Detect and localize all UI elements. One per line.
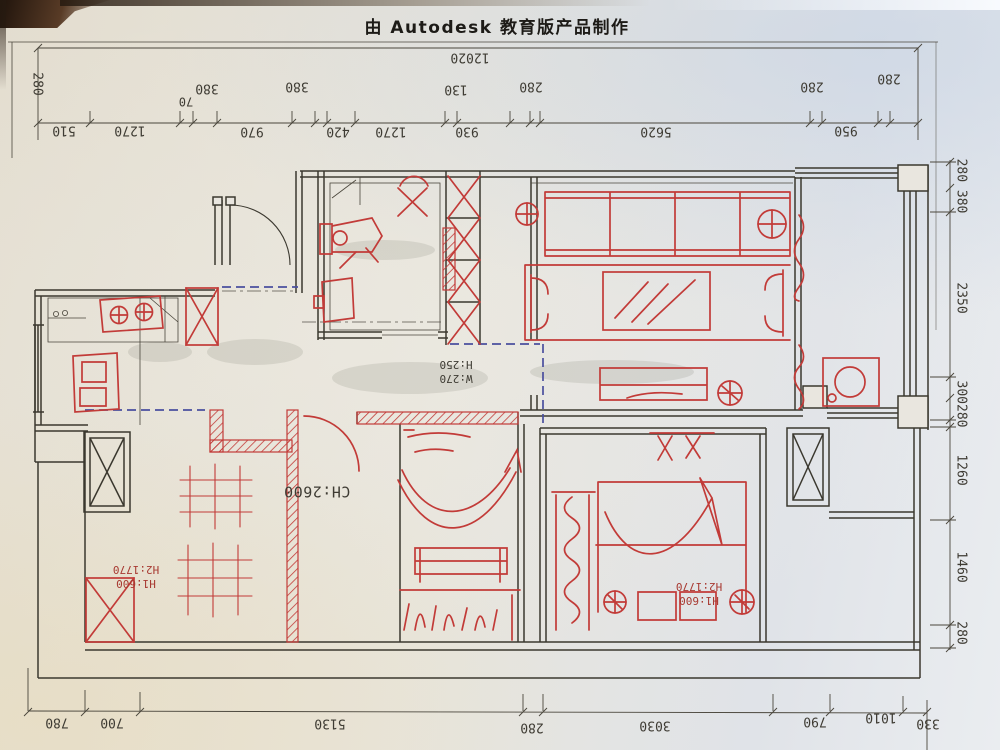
dim-bottom-330: 330 (916, 716, 939, 731)
window-height-note: H:250 (439, 358, 472, 371)
photographed-floor-plan: 由 Autodesk 教育版产品制作 12020 280 70 380 380 … (0, 0, 1000, 750)
height-note-right: H1:600 H2:1770 (676, 580, 722, 607)
dim-top-1270-a: 1270 (114, 123, 145, 138)
dim-bottom-790: 790 (803, 714, 826, 729)
dim-top-420: 420 (326, 124, 349, 139)
dim-top-970: 970 (240, 124, 263, 139)
dim-top-280-a: 280 (519, 79, 542, 94)
dim-top-70: 70 (179, 95, 193, 109)
dim-right-2350: 2350 (954, 282, 969, 313)
dim-top-280-b: 280 (800, 79, 823, 94)
autodesk-educational-banner: 由 Autodesk 教育版产品制作 (364, 17, 629, 38)
dim-top-930: 930 (455, 124, 478, 139)
dim-right-280: 280 (954, 621, 969, 644)
height-note-left-h2: H2:1770 (113, 563, 159, 576)
dim-bottom-1010: 1010 (865, 710, 896, 725)
dim-bottom-280: 280 (520, 720, 543, 735)
dim-bottom-780: 780 (45, 715, 68, 730)
window-size-note: W:270 H:250 (439, 358, 472, 385)
ceiling-height-note: CH:2600 (284, 483, 351, 501)
dim-top-1270-b: 1270 (375, 124, 406, 139)
dim-top-950: 950 (834, 123, 857, 138)
dim-right-300-280: 300280 (954, 381, 969, 428)
dim-top-5620: 5620 (640, 124, 671, 139)
dim-top-total: 12020 (450, 50, 489, 65)
dim-bottom-3030: 3030 (639, 718, 670, 733)
height-note-left-h1: H1:600 (116, 577, 156, 590)
dim-top-280-c: 280 (877, 71, 900, 86)
dimension-chain-top: 12020 280 70 380 380 130 280 280 280 510… (30, 44, 923, 140)
dimension-chain-bottom: 780 700 5130 280 3030 790 1010 330 (24, 668, 940, 750)
dim-top-280-left: 280 (30, 72, 45, 95)
height-note-right-h1: H1:600 (679, 594, 719, 607)
dim-bottom-700: 700 (100, 715, 123, 730)
floor-plan-drawing: 由 Autodesk 教育版产品制作 12020 280 70 380 380 … (0, 0, 1000, 750)
dim-top-380-b: 380 (285, 79, 308, 94)
height-note-left: H1:600 H2:1770 (113, 563, 159, 590)
dim-right-1260: 1260 (954, 454, 969, 485)
dim-top-510: 510 (52, 123, 75, 138)
red-pen-markup (73, 176, 879, 642)
eraser-smudges (128, 240, 694, 394)
dim-right-1460: 1460 (954, 551, 969, 582)
window-width-note: W:270 (439, 372, 472, 385)
height-note-right-h2: H2:1770 (676, 580, 722, 593)
dim-bottom-5130: 5130 (314, 716, 345, 731)
dim-right-280-380: 280 380 (954, 159, 969, 214)
dim-top-130: 130 (444, 82, 467, 97)
dim-top-380-a: 380 (195, 81, 218, 96)
